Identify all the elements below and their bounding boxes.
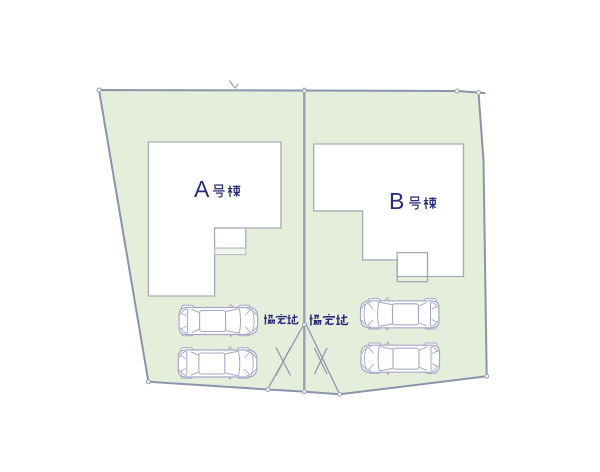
svg-text:B: B [389,188,404,214]
svg-text:A: A [194,176,210,202]
